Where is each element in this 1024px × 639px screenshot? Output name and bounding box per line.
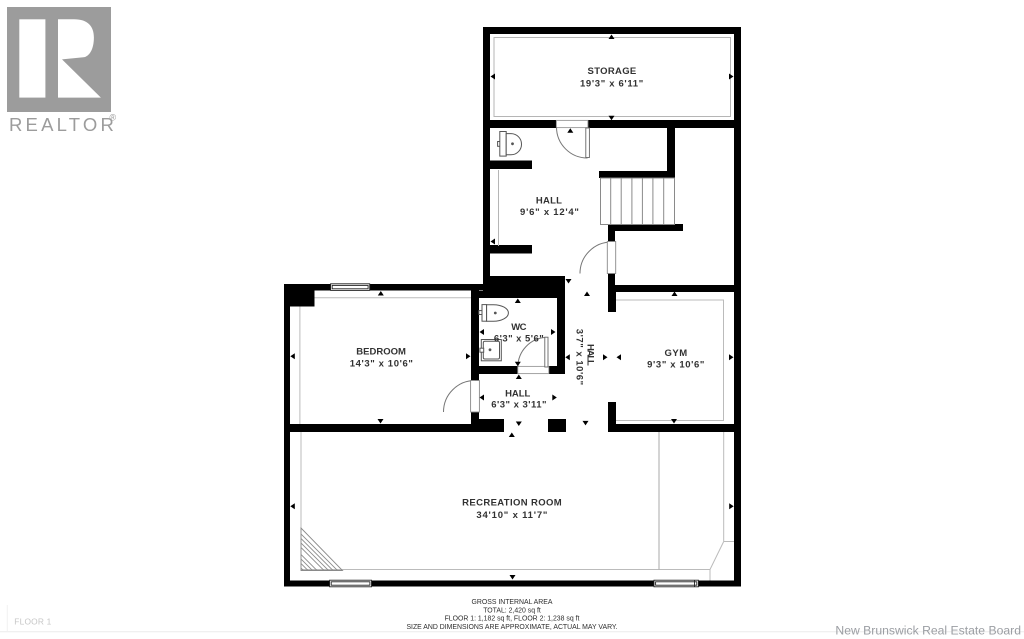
- svg-text:HALL: HALL: [536, 195, 562, 206]
- svg-text:GROSS INTERNAL AREA: GROSS INTERNAL AREA: [472, 599, 553, 606]
- svg-text:HALL: HALL: [505, 389, 530, 400]
- svg-text:®: ®: [110, 113, 117, 123]
- svg-text:6'3" x 3'11": 6'3" x 3'11": [491, 400, 546, 411]
- svg-text:STORAGE: STORAGE: [588, 66, 637, 77]
- svg-text:19'3" x 6'11": 19'3" x 6'11": [580, 78, 643, 89]
- svg-text:3'7" x 10'6": 3'7" x 10'6": [574, 329, 585, 385]
- svg-text:GYM: GYM: [664, 348, 687, 359]
- svg-text:RECREATION ROOM: RECREATION ROOM: [462, 497, 562, 508]
- svg-text:BEDROOM: BEDROOM: [356, 346, 406, 357]
- svg-text:FLOOR 1: 1,182 sq ft, FLOOR 2:: FLOOR 1: 1,182 sq ft, FLOOR 2: 1,238 sq …: [445, 616, 580, 623]
- svg-text:14'3" x 10'6": 14'3" x 10'6": [350, 359, 413, 370]
- svg-text:TOTAL: 2,420 sq ft: TOTAL: 2,420 sq ft: [483, 607, 541, 614]
- svg-text:New Brunswick Real Estate Boar: New Brunswick Real Estate Board: [835, 623, 1021, 637]
- svg-text:REALTOR: REALTOR: [9, 114, 117, 135]
- svg-text:FLOOR 1: FLOOR 1: [14, 617, 51, 627]
- svg-text:34'10" x 11'7": 34'10" x 11'7": [476, 510, 547, 521]
- svg-text:9'3" x 10'6": 9'3" x 10'6": [647, 360, 704, 371]
- svg-text:SIZE AND DIMENSIONS ARE APPROX: SIZE AND DIMENSIONS ARE APPROXIMATE, ACT…: [406, 624, 617, 631]
- svg-text:HALL: HALL: [585, 344, 596, 366]
- svg-text:WC: WC: [511, 322, 526, 333]
- svg-text:6'3" x 5'6": 6'3" x 5'6": [494, 333, 544, 344]
- svg-text:9'6" x 12'4": 9'6" x 12'4": [520, 207, 579, 218]
